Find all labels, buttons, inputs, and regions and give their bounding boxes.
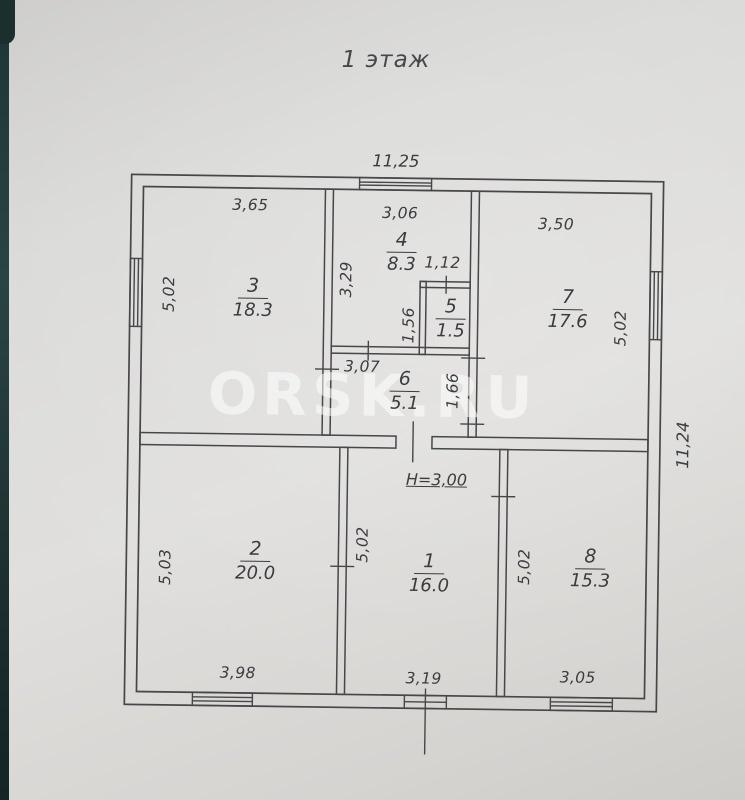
- room-2-label: 2 20.0: [235, 539, 276, 584]
- room-3-label: 3 18.3: [233, 275, 274, 320]
- room-area: 16.0: [409, 576, 449, 596]
- dim-room6-width: 3,07: [344, 357, 380, 376]
- room-area: 15.3: [570, 571, 610, 591]
- dim-room5-depth: 1,56: [399, 307, 418, 343]
- room-number: 2: [240, 539, 270, 562]
- room-area: 20.0: [235, 563, 275, 583]
- dim-room6-depth: 1,66: [443, 373, 462, 409]
- window-right: [649, 272, 662, 340]
- floor-plan: ORSK.RU 11,25 11,24 H=3,00 3 18.3 4 8.3 …: [0, 0, 745, 800]
- room-area: 8.3: [386, 254, 416, 274]
- room-8-label: 8 15.3: [570, 546, 611, 591]
- room-4-label: 4 8.3: [386, 230, 417, 275]
- room-number: 4: [387, 230, 417, 253]
- dim-room3-width: 3,65: [232, 196, 268, 215]
- window-bottom-right: [550, 697, 612, 711]
- room-6-label: 6 5.1: [389, 369, 420, 414]
- overall-depth-dimension: 11,24: [673, 421, 693, 469]
- room-area: 17.6: [547, 312, 587, 332]
- dim-room3-depth: 5,02: [160, 276, 179, 312]
- entrance-opening: [404, 688, 447, 755]
- room-number: 6: [390, 369, 420, 392]
- room-area: 5.1: [389, 394, 419, 414]
- overall-width-dimension: 11,25: [372, 151, 420, 171]
- window-top: [359, 178, 431, 191]
- room-area: 1.5: [435, 321, 465, 341]
- room-number: 8: [575, 546, 605, 569]
- window-bottom-left: [192, 692, 252, 706]
- dim-room8-depth: 5,02: [515, 549, 534, 585]
- dim-room8-width: 3,05: [560, 668, 596, 687]
- window-left: [130, 258, 143, 326]
- dim-room1-width: 3,19: [405, 669, 441, 688]
- room-1-label: 1 16.0: [409, 551, 450, 596]
- room-area: 18.3: [233, 300, 273, 320]
- dim-room7-width: 3,50: [538, 215, 574, 234]
- dim-room5-width: 1,12: [424, 253, 460, 272]
- dim-room1-depth: 5,02: [353, 526, 372, 562]
- dim-room4-depth: 3,29: [337, 261, 356, 297]
- room-number: 5: [436, 296, 466, 319]
- dim-room7-depth: 5,02: [611, 310, 630, 346]
- ceiling-height-note: H=3,00: [406, 470, 467, 490]
- room-5-label: 5 1.5: [435, 296, 466, 341]
- room-number: 1: [414, 551, 444, 574]
- dim-room4-width: 3,06: [382, 204, 418, 223]
- floorplan-photo: 1 этаж: [0, 0, 745, 800]
- dim-room2-depth: 5,03: [156, 549, 175, 585]
- room-7-label: 7 17.6: [547, 287, 588, 332]
- room-number: 7: [553, 287, 583, 310]
- room-number: 3: [238, 276, 268, 299]
- dim-room2-width: 3,98: [220, 664, 256, 683]
